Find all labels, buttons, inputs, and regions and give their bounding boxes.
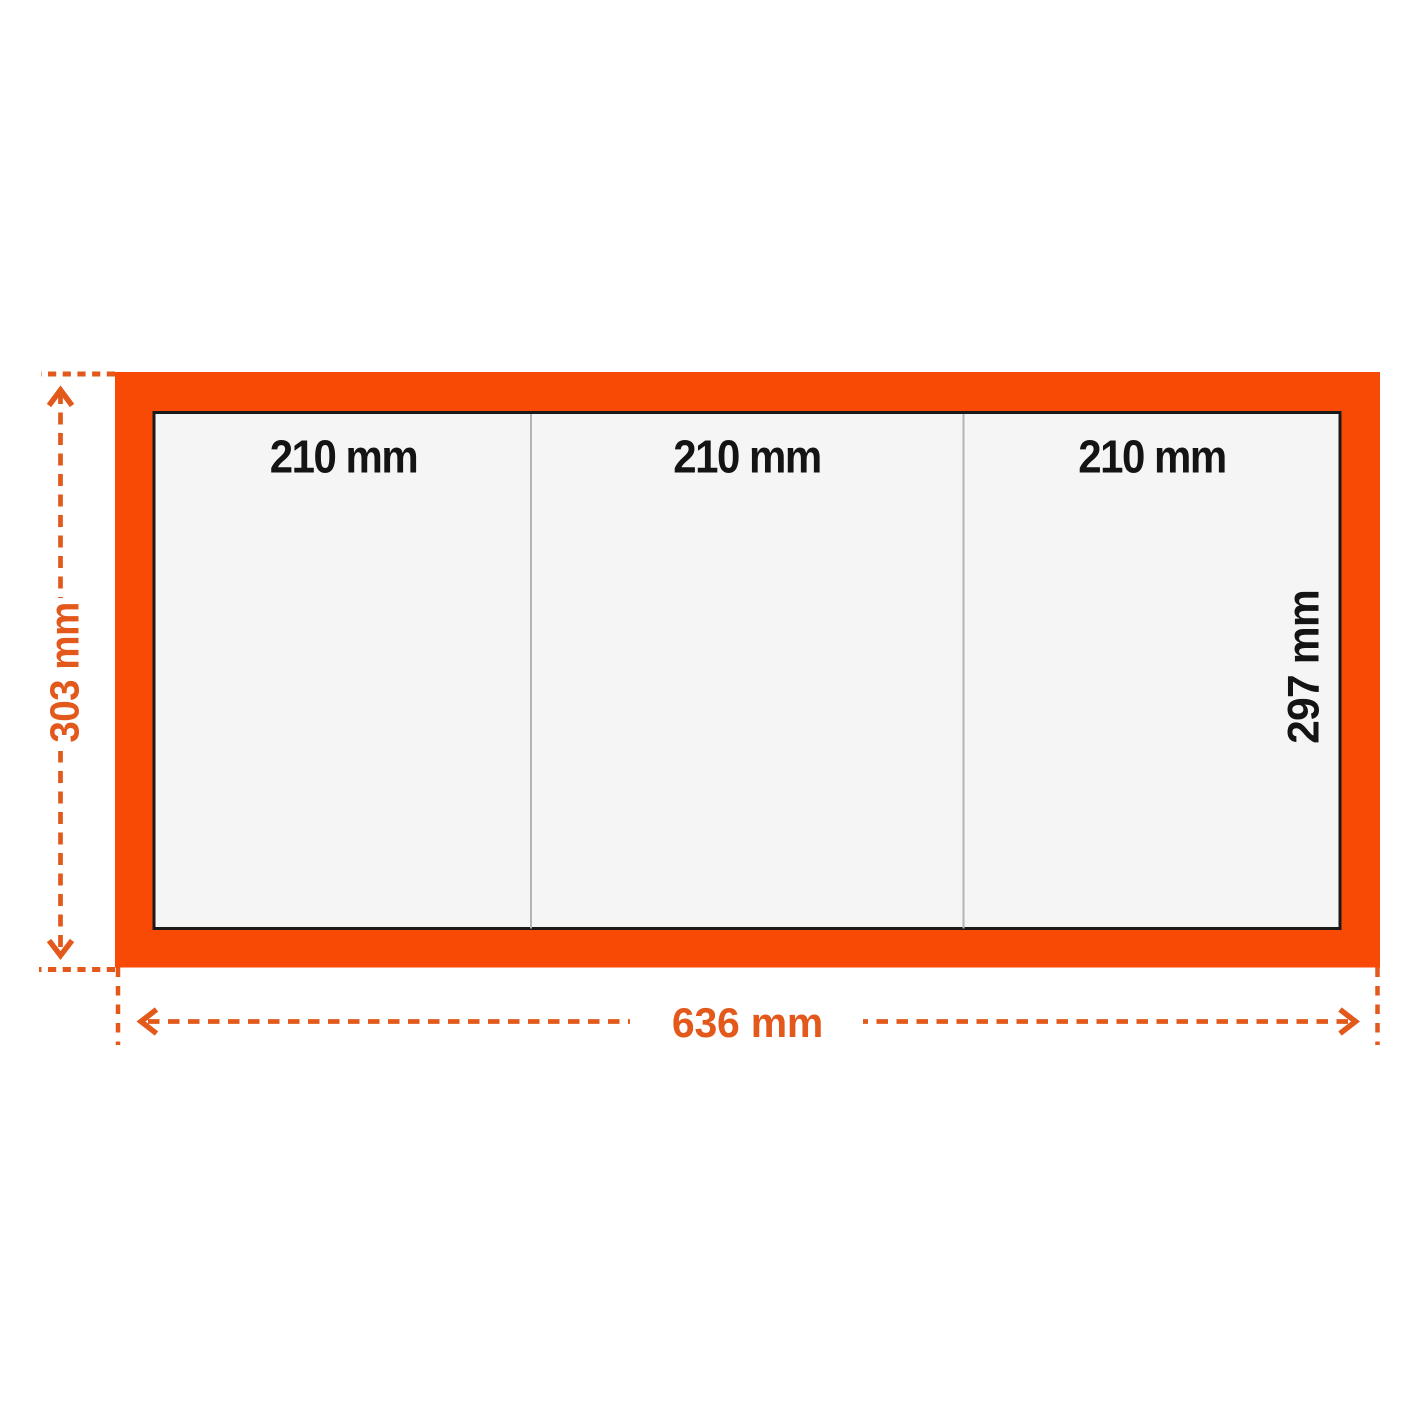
svg-text:303 mm: 303 mm bbox=[43, 602, 88, 742]
svg-text:210 mm: 210 mm bbox=[270, 432, 417, 483]
svg-text:210 mm: 210 mm bbox=[1078, 432, 1225, 483]
svg-text:210 mm: 210 mm bbox=[673, 432, 820, 483]
svg-text:297 mm: 297 mm bbox=[1280, 590, 1329, 744]
svg-text:636 mm: 636 mm bbox=[672, 1000, 823, 1046]
